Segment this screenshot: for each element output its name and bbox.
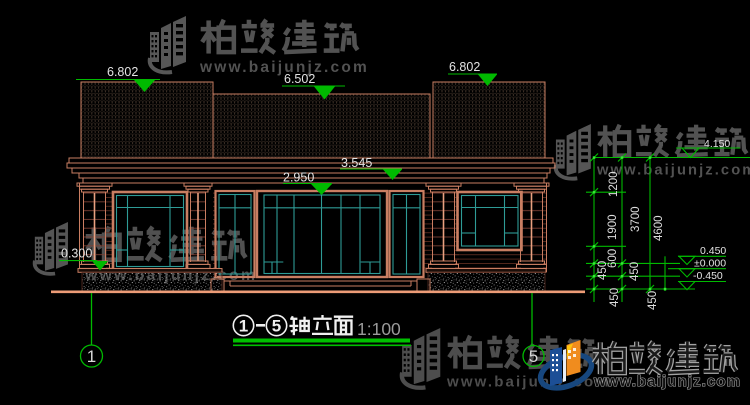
svg-text:2.950: 2.950 bbox=[283, 171, 314, 185]
svg-text:450: 450 bbox=[629, 262, 641, 281]
svg-text:5: 5 bbox=[529, 347, 538, 366]
svg-text:6.802: 6.802 bbox=[449, 60, 480, 74]
svg-text:-0.450: -0.450 bbox=[693, 270, 723, 282]
svg-text:0.300: 0.300 bbox=[61, 247, 92, 261]
svg-text:6.802: 6.802 bbox=[107, 65, 138, 79]
svg-text:0.450: 0.450 bbox=[700, 245, 726, 257]
svg-text:450: 450 bbox=[609, 288, 621, 307]
svg-text:450: 450 bbox=[647, 291, 659, 310]
svg-text:3.545: 3.545 bbox=[341, 156, 372, 170]
svg-text:6.502: 6.502 bbox=[284, 72, 315, 86]
svg-text:4.150: 4.150 bbox=[704, 138, 730, 150]
svg-text:1: 1 bbox=[87, 347, 96, 366]
svg-text:1: 1 bbox=[239, 317, 248, 336]
svg-text:1200: 1200 bbox=[608, 171, 620, 197]
svg-text:1900: 1900 bbox=[607, 214, 619, 240]
svg-text:4600: 4600 bbox=[653, 215, 665, 241]
svg-text:www.baijunjz.com: www.baijunjz.com bbox=[593, 373, 741, 390]
svg-text:450: 450 bbox=[597, 261, 609, 280]
svg-text:±0.000: ±0.000 bbox=[694, 258, 726, 270]
svg-text:1:100: 1:100 bbox=[357, 319, 401, 339]
svg-text:3700: 3700 bbox=[630, 206, 642, 232]
svg-text:5: 5 bbox=[272, 317, 281, 336]
